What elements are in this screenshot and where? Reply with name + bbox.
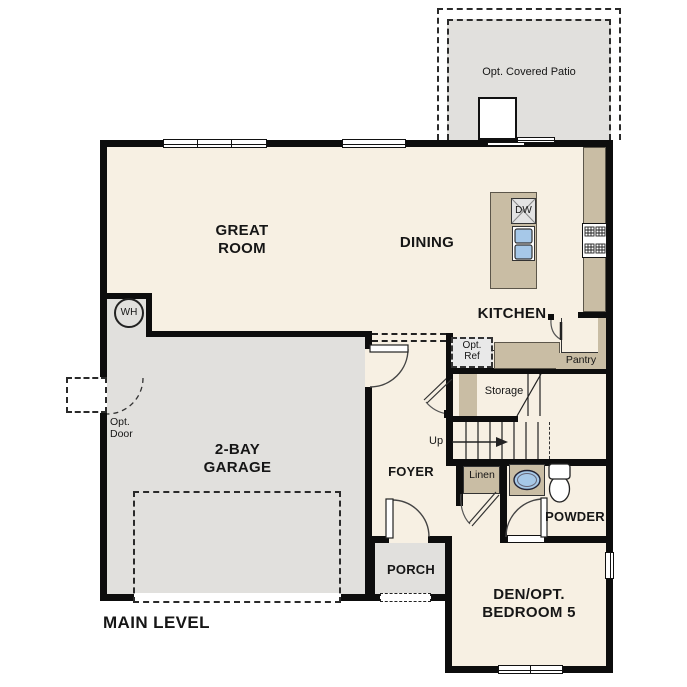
pantry-counter (598, 318, 606, 353)
wall-segment (365, 337, 372, 349)
opt-door-label: Opt. Door (110, 416, 152, 440)
window (498, 665, 531, 674)
up-label: Up (429, 435, 451, 447)
wall-segment (100, 140, 107, 601)
pantry-label: Pantry (557, 355, 605, 366)
powder-vanity (509, 464, 545, 496)
dining-label: DINING (386, 234, 468, 252)
level-title: MAIN LEVEL (103, 613, 210, 633)
den-label: DEN/OPT. BEDROOM 5 (450, 586, 608, 622)
foyer-label: FOYER (384, 464, 438, 479)
window (197, 139, 232, 148)
pantry-interior (561, 318, 598, 353)
range (582, 223, 607, 258)
window (342, 139, 406, 148)
wall-segment (368, 543, 375, 594)
powder-label: POWDER (538, 509, 612, 524)
optional-door-stoop (66, 377, 107, 413)
water-heater-label: WH (114, 307, 144, 318)
storage-label: Storage (478, 385, 530, 397)
wall-segment (428, 536, 452, 543)
kitchen-counter (494, 342, 560, 369)
patio-outline-inner (447, 19, 611, 140)
porch-step (380, 593, 431, 602)
window (163, 139, 198, 148)
dishwasher-label: DW (510, 205, 537, 216)
storage-counter (459, 374, 477, 416)
window (231, 139, 267, 148)
garage-door-outline (133, 491, 341, 603)
great-room-foyer-opening (372, 340, 446, 342)
sliding-door-panel (517, 137, 555, 143)
floor-plan: Opt. Covered Patio GREAT ROOM DINING KIT… (0, 0, 687, 687)
window (530, 665, 563, 674)
patio-fireplace (478, 97, 517, 140)
porch-label: PORCH (380, 562, 442, 577)
opt-ref-label: Opt. Ref (451, 340, 493, 362)
kitchen-label: KITCHEN (461, 305, 563, 323)
great-room-foyer-opening (372, 333, 446, 335)
stair-rail-dash-line (549, 422, 550, 459)
linen-label: Linen (462, 470, 502, 481)
wall-segment (365, 536, 389, 543)
wall-segment (450, 416, 518, 422)
powder-door-threshold (507, 535, 545, 543)
wall-segment (146, 331, 372, 337)
garage-label: 2-BAY GARAGE (174, 441, 301, 477)
wall-segment (544, 536, 613, 543)
patio-label: Opt. Covered Patio (447, 66, 611, 78)
window (605, 552, 614, 579)
kitchen-sink-box (512, 226, 535, 261)
great-room-label: GREAT ROOM (179, 222, 305, 258)
